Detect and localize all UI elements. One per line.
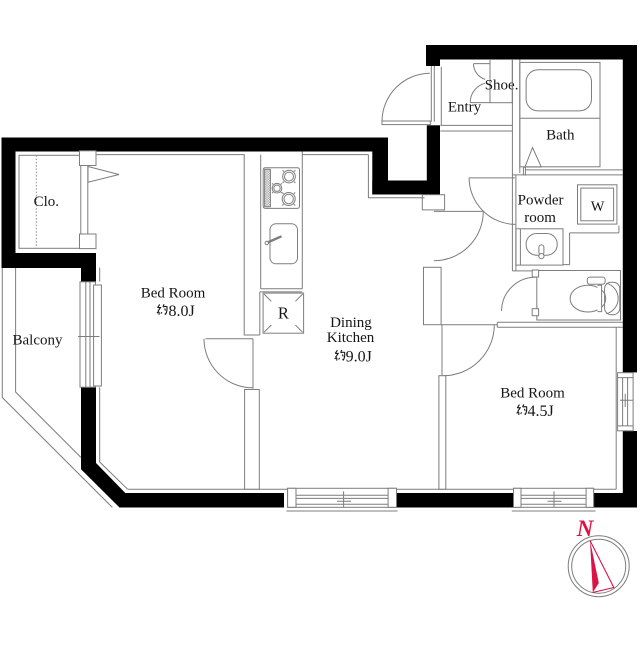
svg-text:R: R — [278, 303, 289, 322]
svg-text:Bed Room: Bed Room — [141, 286, 206, 302]
svg-text:Clo.: Clo. — [34, 194, 59, 210]
svg-text:Balcony: Balcony — [13, 333, 63, 349]
svg-text:Powder: Powder — [518, 192, 564, 208]
svg-text:Shoe.: Shoe. — [485, 78, 519, 94]
svg-text:W: W — [591, 199, 605, 215]
svg-text:Bath: Bath — [546, 127, 575, 143]
svg-text:N: N — [576, 516, 595, 541]
svg-text:4.5J: 4.5J — [528, 403, 554, 420]
svg-text:Kitchen: Kitchen — [327, 330, 375, 346]
svg-text:Bed Room: Bed Room — [500, 386, 565, 402]
svg-text:room: room — [524, 210, 556, 226]
svg-text:9.0J: 9.0J — [346, 348, 372, 365]
svg-text:Dining: Dining — [330, 315, 372, 331]
svg-text:8.0J: 8.0J — [169, 303, 195, 320]
